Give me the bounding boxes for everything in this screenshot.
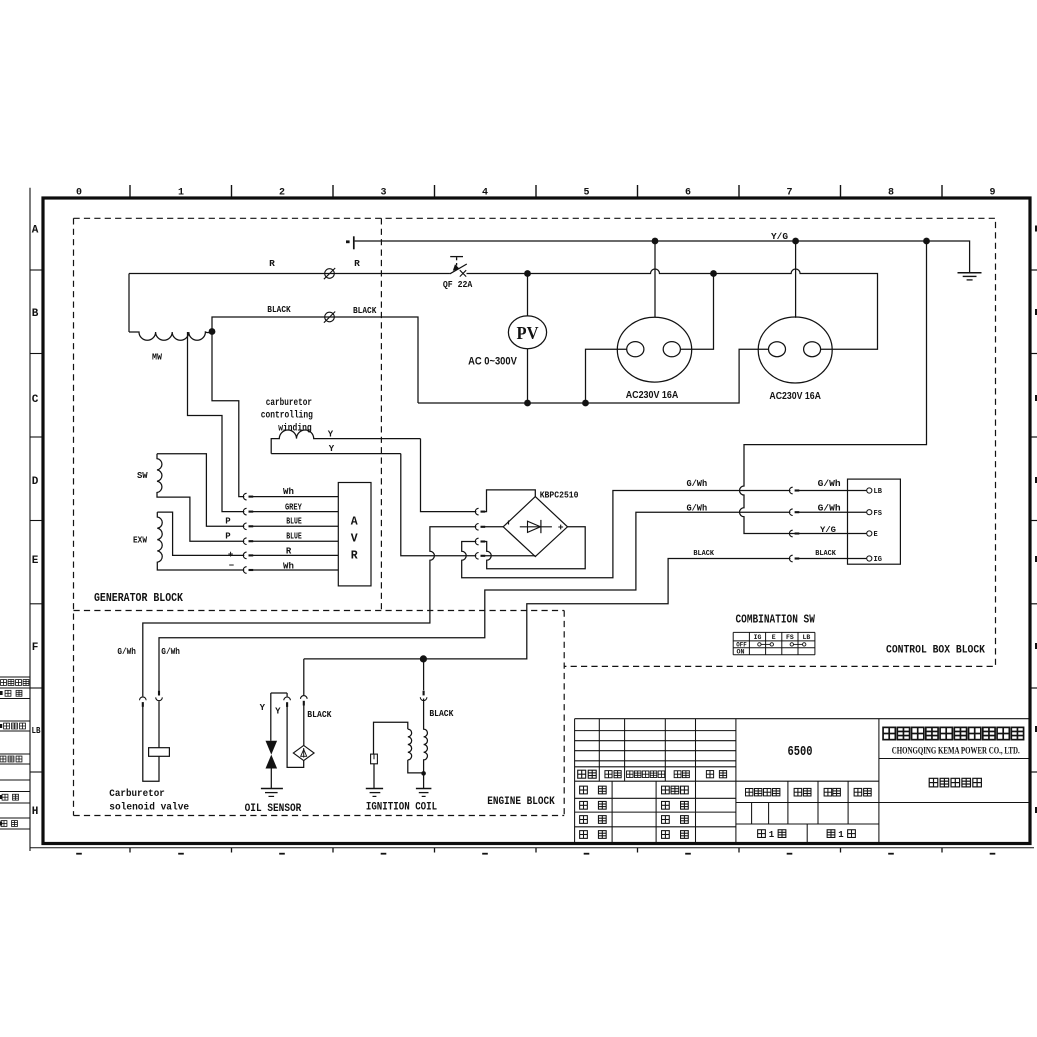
svg-text:G/Wh: G/Wh: [686, 479, 707, 489]
svg-text:7: 7: [786, 187, 792, 198]
svg-text:BLUE: BLUE: [286, 532, 302, 542]
svg-text:5: 5: [583, 187, 589, 198]
svg-text:3: 3: [380, 187, 386, 198]
svg-text:Wh: Wh: [283, 487, 294, 497]
svg-text:A: A: [351, 516, 358, 529]
svg-text:LB: LB: [874, 488, 883, 496]
svg-text:EXW: EXW: [133, 535, 147, 546]
svg-text:Wh: Wh: [283, 561, 294, 571]
svg-text:−: −: [229, 561, 234, 571]
svg-text:BLACK: BLACK: [815, 550, 836, 558]
svg-text:IG: IG: [754, 634, 762, 641]
svg-text:V: V: [351, 533, 358, 546]
svg-text:E: E: [772, 634, 776, 641]
svg-text:Y: Y: [329, 444, 335, 454]
svg-text:G/Wh: G/Wh: [161, 647, 180, 657]
svg-text:Y/G: Y/G: [771, 232, 788, 242]
svg-text:R: R: [286, 547, 292, 557]
svg-text:G/Wh: G/Wh: [117, 647, 136, 657]
svg-text:P: P: [225, 532, 231, 542]
svg-text:BLACK: BLACK: [429, 709, 454, 719]
svg-text:1: 1: [769, 830, 775, 840]
svg-text:R: R: [354, 258, 360, 269]
svg-text:carburetor: carburetor: [266, 397, 312, 409]
svg-text:winding: winding: [278, 422, 312, 434]
svg-text:0: 0: [76, 187, 82, 198]
svg-text:LB: LB: [32, 726, 41, 736]
svg-text:BLUE: BLUE: [286, 516, 302, 526]
svg-text:IGNITION COIL: IGNITION COIL: [366, 802, 438, 814]
svg-text:OIL SENSOR: OIL SENSOR: [245, 803, 302, 815]
svg-text:Y: Y: [260, 703, 266, 713]
svg-text:BLACK: BLACK: [353, 306, 377, 316]
svg-text:MW: MW: [152, 352, 162, 363]
svg-text:H: H: [32, 806, 39, 818]
svg-text:CHONGQING KEMA POWER CO., LTD.: CHONGQING KEMA POWER CO., LTD.: [892, 746, 1020, 756]
svg-text:LB: LB: [802, 634, 810, 641]
svg-text:R: R: [269, 258, 275, 269]
svg-text:P: P: [225, 516, 231, 526]
svg-text:2: 2: [279, 187, 285, 198]
svg-text:E: E: [32, 555, 39, 567]
svg-text:C: C: [32, 394, 39, 406]
svg-text:ON: ON: [737, 649, 745, 656]
svg-text:AC230V 16A: AC230V 16A: [769, 390, 821, 402]
svg-text:QF 22A: QF 22A: [443, 280, 473, 290]
svg-text:controlling: controlling: [261, 410, 313, 422]
svg-text:9: 9: [989, 187, 995, 198]
svg-text:COMBINATION SW: COMBINATION SW: [736, 613, 815, 626]
svg-text:R: R: [351, 550, 358, 563]
svg-text:AC230V 16A: AC230V 16A: [626, 389, 679, 401]
svg-text:AC 0~300V: AC 0~300V: [468, 356, 517, 368]
svg-text:Y/G: Y/G: [820, 525, 836, 535]
svg-text:ENGINE BLOCK: ENGINE BLOCK: [487, 796, 555, 808]
svg-text:FS: FS: [786, 634, 794, 641]
svg-text:BLACK: BLACK: [307, 710, 332, 720]
svg-text:E: E: [874, 531, 878, 539]
svg-text:G/Wh: G/Wh: [818, 504, 841, 514]
svg-text:D: D: [32, 476, 39, 488]
svg-text:IG: IG: [874, 556, 882, 564]
svg-text:KBPC2510: KBPC2510: [540, 489, 579, 500]
svg-text:1: 1: [178, 187, 184, 198]
svg-text:Y: Y: [275, 706, 281, 716]
svg-text:FS: FS: [874, 510, 882, 518]
svg-text:BLACK: BLACK: [267, 305, 291, 315]
svg-text:8: 8: [888, 187, 894, 198]
svg-text:A: A: [32, 225, 39, 237]
svg-text:F: F: [32, 642, 39, 654]
svg-text:1: 1: [838, 830, 844, 840]
svg-text:4: 4: [482, 187, 488, 198]
svg-text:G/Wh: G/Wh: [818, 479, 841, 489]
svg-text:SW: SW: [137, 470, 148, 481]
svg-text:6500: 6500: [788, 745, 813, 760]
svg-text:Carburetor: Carburetor: [109, 788, 165, 800]
svg-text:BLACK: BLACK: [693, 550, 714, 558]
svg-text:+: +: [228, 550, 233, 560]
svg-text:OFF: OFF: [736, 642, 747, 649]
svg-text:6: 6: [685, 187, 691, 198]
svg-text:PV: PV: [517, 323, 539, 343]
svg-text:B: B: [32, 308, 39, 320]
svg-text:CONTROL BOX BLOCK: CONTROL BOX BLOCK: [886, 645, 985, 657]
svg-text:Y: Y: [328, 430, 334, 440]
svg-text:GREY: GREY: [285, 503, 302, 513]
svg-text:solenoid valve: solenoid valve: [109, 802, 189, 814]
svg-text:G/Wh: G/Wh: [686, 504, 707, 514]
svg-text:GENERATOR BLOCK: GENERATOR BLOCK: [94, 592, 183, 605]
